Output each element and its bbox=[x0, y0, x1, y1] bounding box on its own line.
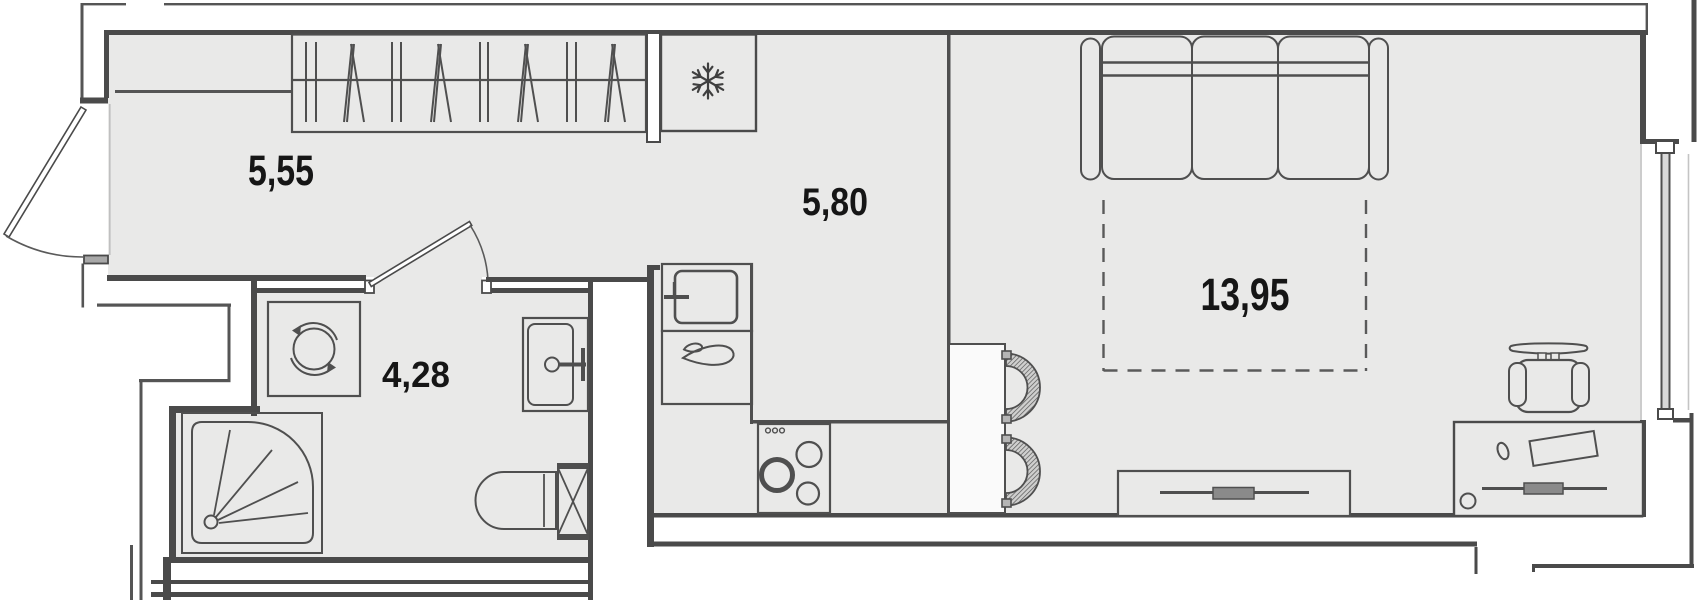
svg-text:13,95: 13,95 bbox=[1201, 269, 1290, 320]
svg-text:5,55: 5,55 bbox=[248, 147, 314, 195]
svg-text:4,28: 4,28 bbox=[382, 354, 450, 395]
svg-text:5,80: 5,80 bbox=[802, 181, 868, 224]
